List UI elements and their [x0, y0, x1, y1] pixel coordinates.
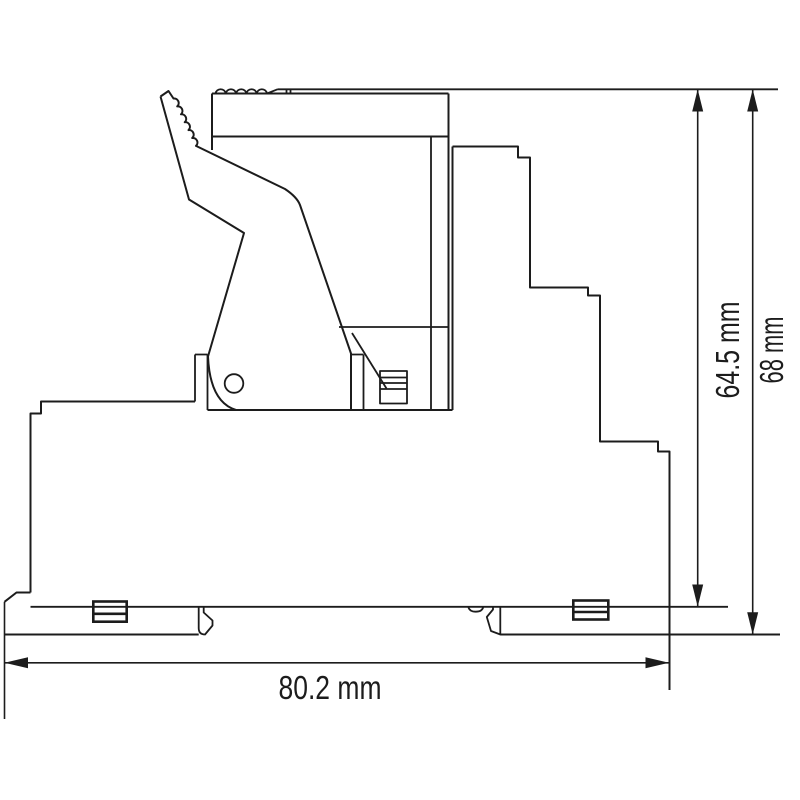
lever-tip-and-grip-edge	[161, 91, 352, 410]
dimension-height-overall: 68 mm	[747, 89, 790, 634]
rail-claw-left	[199, 607, 213, 635]
base-left-profile	[31, 402, 196, 593]
arrowhead-up-icon	[747, 89, 758, 111]
arrowhead-up-icon	[692, 89, 703, 111]
socket-base	[5, 402, 781, 635]
base-left-hook	[5, 593, 31, 602]
clamp-box	[380, 371, 407, 404]
release-lever	[161, 91, 387, 410]
arrowhead-left-icon	[5, 657, 29, 668]
rail-claw-right	[487, 607, 501, 635]
dim-label-height-overall: 68 mm	[753, 317, 790, 384]
lever-foot-arc	[208, 357, 236, 411]
dimension-width-overall: 80.2 mm	[5, 602, 670, 719]
lever-slot	[351, 355, 364, 411]
relay-module-dimension-drawing: 64.5 mm 68 mm 80.2 mm	[0, 0, 800, 800]
technical-drawing-page: 64.5 mm 68 mm 80.2 mm	[0, 0, 800, 800]
dimension-height-to-rail: 64.5 mm	[692, 89, 746, 607]
arrowhead-down-icon	[747, 612, 758, 634]
lever-pivot-hole	[225, 374, 244, 393]
socket-wall-behind-lever	[352, 333, 387, 389]
terminal-clamp-detail	[380, 371, 407, 404]
clamp-slots	[380, 378, 407, 390]
dim-label-height-to-rail: 64.5 mm	[709, 302, 746, 399]
rear-terminal-block	[453, 147, 670, 691]
arrowhead-right-icon	[646, 657, 670, 668]
dim-label-width-overall: 80.2 mm	[279, 669, 382, 706]
mounting-clip-left	[93, 602, 126, 622]
relay-module-body	[208, 89, 779, 410]
housing-ledge	[195, 355, 208, 402]
rear-block-step-profile	[453, 147, 670, 691]
arrowhead-down-icon	[692, 585, 703, 607]
mounting-clip-right	[573, 601, 608, 620]
